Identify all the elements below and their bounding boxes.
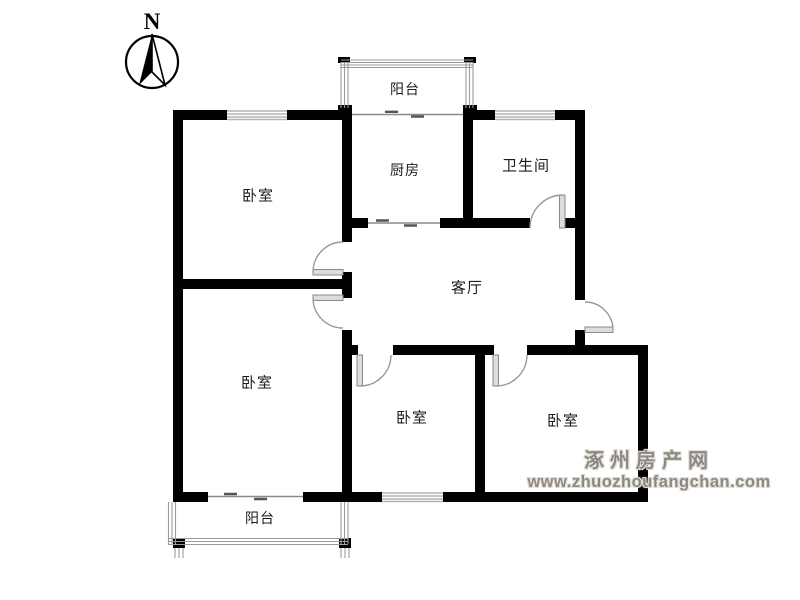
door-arc-bedroom-se <box>496 355 527 386</box>
balcony-enclosures <box>168 60 473 558</box>
door-panel-bedroom-se <box>493 355 499 386</box>
door-arc-bathroom <box>530 195 563 228</box>
north-arrow-icon <box>126 34 178 88</box>
door-arc-bedroom-nw <box>313 242 343 272</box>
door-panel-bathroom <box>560 195 566 228</box>
door-panel-entrance <box>585 327 613 333</box>
door-panel-bedroom-s <box>357 355 363 386</box>
door-arc-bedroom-s <box>360 355 391 386</box>
door-panel-bedroom-sw <box>313 295 343 301</box>
room-label-living-room: 客厅 <box>451 277 483 298</box>
window-bathroom <box>495 111 555 120</box>
room-label-bathroom: 卫生间 <box>502 155 550 176</box>
room-label-balcony-south: 阳台 <box>245 508 275 528</box>
door-panel-bedroom-nw <box>313 270 343 276</box>
watermark-site-url: www.zhuozhoufangchan.com <box>527 473 771 491</box>
room-label-bedroom-northwest: 卧室 <box>242 185 274 206</box>
door-arc-entrance <box>585 302 613 330</box>
north-label: N <box>144 9 161 35</box>
window-bedroom-nw <box>227 111 287 120</box>
watermark-site-name: 涿州房产网 <box>527 450 771 472</box>
watermark: 涿州房产网 www.zhuozhoufangchan.com <box>527 450 771 491</box>
floor-plan-canvas: N 阳台 厨房 卫生间 卧室 客厅 卧室 卧室 卧室 阳台 涿州房产网 www.… <box>0 0 800 600</box>
sliding-openings <box>208 112 463 499</box>
room-label-bedroom-southwest: 卧室 <box>241 372 273 393</box>
door-arc-bedroom-sw <box>313 298 343 328</box>
window-bedroom-s <box>382 493 443 502</box>
room-label-balcony-north: 阳台 <box>390 79 420 99</box>
room-label-bedroom-south: 卧室 <box>396 407 428 428</box>
room-label-kitchen: 厨房 <box>390 160 420 180</box>
room-label-bedroom-southeast: 卧室 <box>547 410 579 431</box>
